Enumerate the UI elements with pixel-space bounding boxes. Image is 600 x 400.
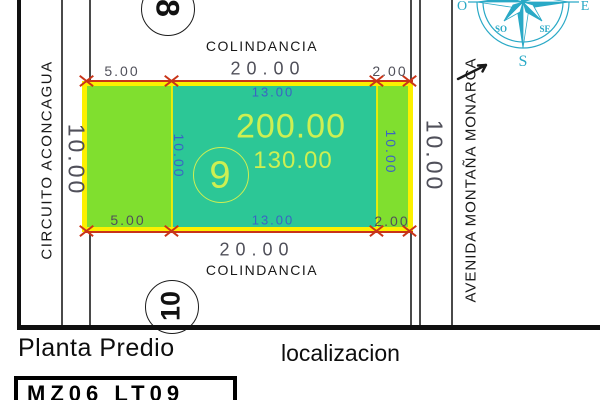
- lot-id-box: MZ06 LT09: [14, 376, 237, 400]
- compass-south-label: S: [519, 53, 528, 70]
- compass-east-label: E: [581, 0, 590, 14]
- dim-left-offset-top: 5.00: [104, 63, 139, 79]
- dimension-tick-icon: [163, 224, 180, 237]
- site-plan-canvas: COLINDANCIA COLINDANCIA 5.00 20.00 2.00 …: [0, 0, 600, 400]
- plan-title: Planta Predio: [18, 334, 175, 363]
- adjacent-lot-north-number: 8: [149, 0, 186, 17]
- drawing-frame-bottom: [17, 325, 600, 330]
- dimension-tick-icon: [78, 224, 95, 237]
- lot-number: 9: [209, 155, 230, 198]
- location-title: localizacion: [281, 340, 400, 367]
- dim-depth-right: 10.00: [383, 129, 399, 174]
- dimension-tick-icon: [163, 74, 180, 87]
- street-name-left: CIRCUITO ACONCAGUA: [39, 60, 56, 259]
- dimension-tick-icon: [78, 74, 95, 87]
- dimension-line-bottom: [85, 231, 413, 233]
- boundary-label-bottom: COLINDANCIA: [206, 262, 318, 278]
- strip-divider-right: [376, 86, 378, 227]
- dim-width-top: 20.00: [230, 59, 305, 80]
- street-name-right: AVENIDA MONTAÑA MONARCA: [463, 58, 480, 303]
- dim-width-bottom: 20.00: [219, 240, 294, 261]
- compass-southwest-label: SO: [495, 24, 507, 34]
- lot-area-inner: 130.00: [253, 147, 332, 175]
- adjacent-lot-south-number: 10: [156, 291, 187, 321]
- drawing-frame-left: [17, 0, 21, 330]
- dim-inner-width-top: 13.00: [252, 85, 295, 100]
- lot-id-text: MZ06 LT09: [27, 381, 233, 400]
- dim-right-offset-top: 2.00: [372, 63, 407, 79]
- dim-street-left-width: 10.00: [63, 124, 90, 197]
- dimension-line-top: [85, 80, 413, 82]
- dim-right-offset-bottom: 2.00: [374, 213, 409, 229]
- lot-area-total: 200.00: [236, 108, 346, 147]
- boundary-label-top: COLINDANCIA: [206, 38, 318, 54]
- dim-inner-width-bottom: 13.00: [252, 213, 295, 228]
- dim-depth-left: 10.00: [171, 133, 187, 178]
- dim-left-offset-bottom: 5.00: [110, 212, 145, 228]
- dim-street-right-width: 10.00: [421, 120, 448, 193]
- compass-west-label: O: [457, 0, 467, 14]
- lot-left-strip: [87, 86, 172, 227]
- compass-southeast-label: SE: [539, 24, 550, 34]
